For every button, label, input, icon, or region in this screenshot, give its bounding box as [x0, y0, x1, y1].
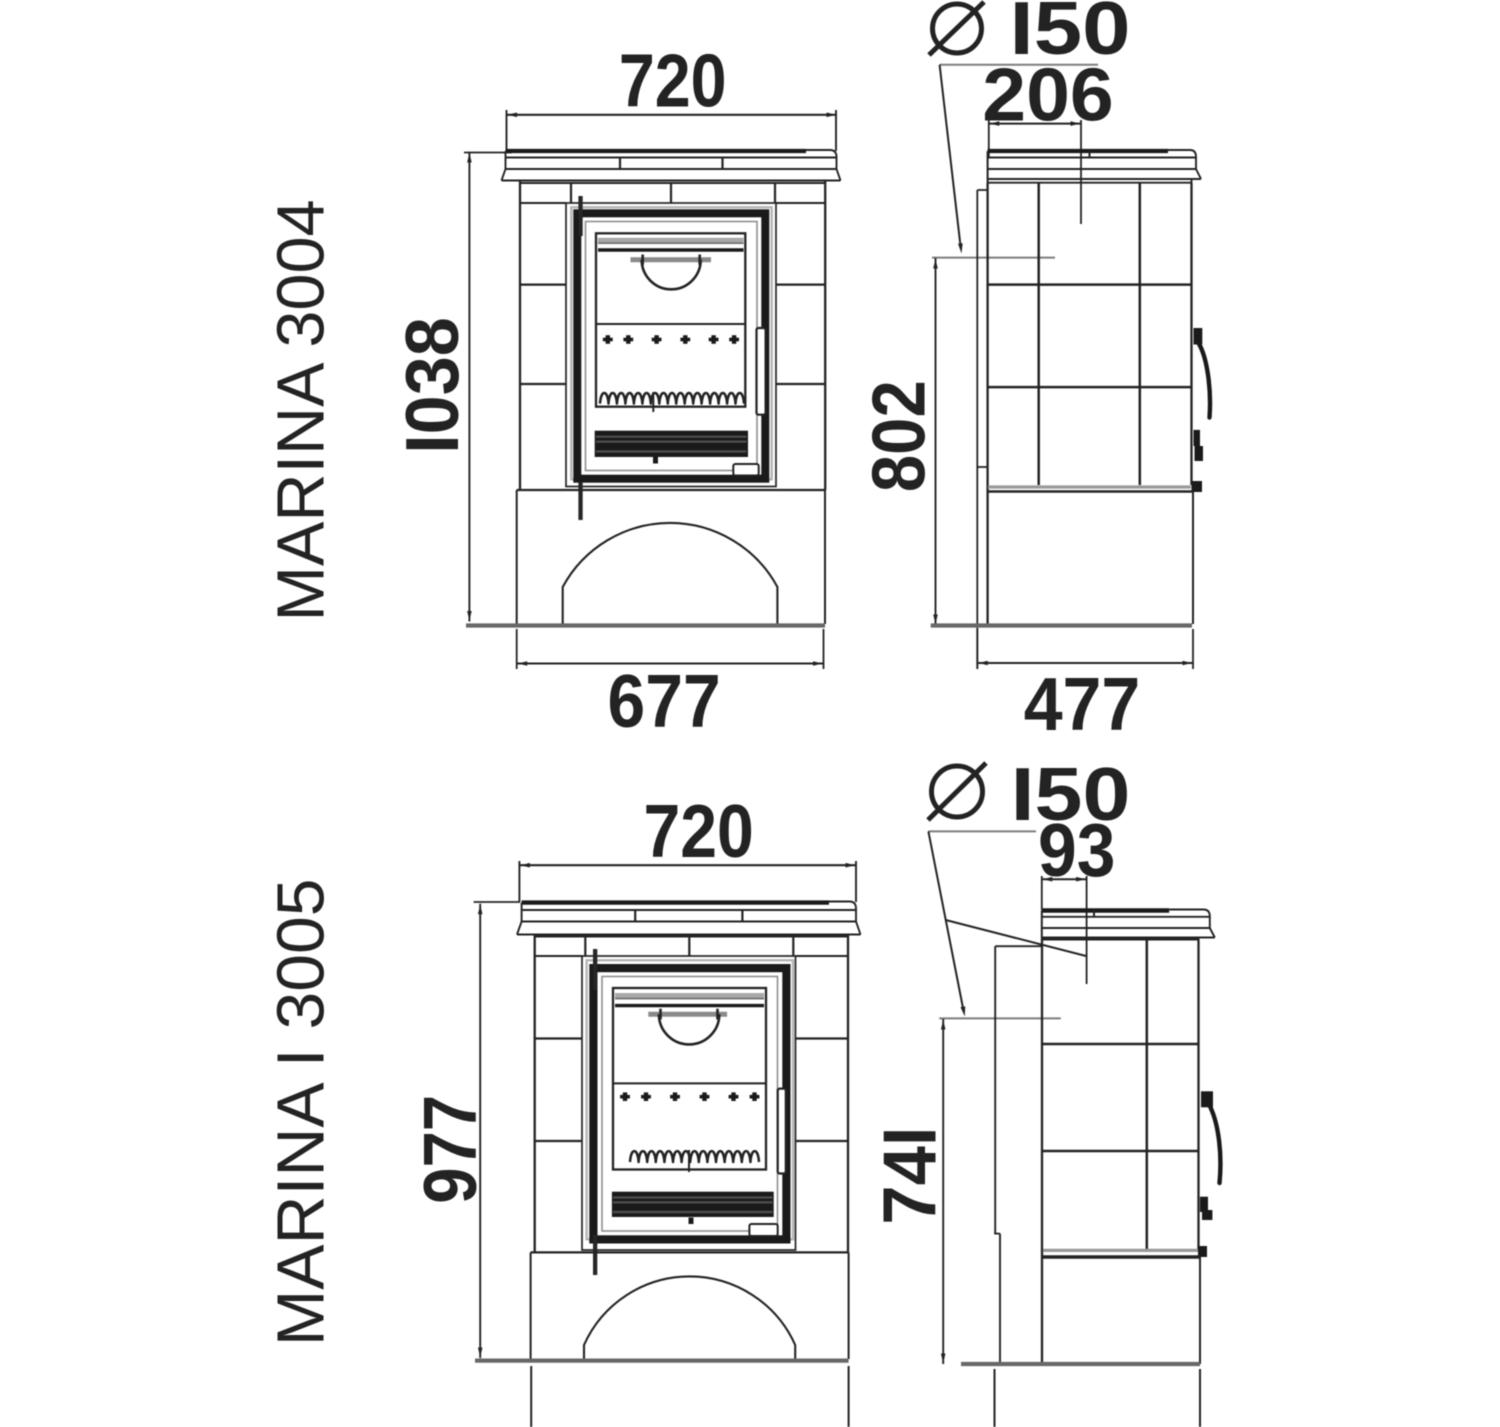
svg-text:720: 720 — [619, 39, 727, 123]
svg-text:477: 477 — [1024, 662, 1141, 746]
svg-text:802: 802 — [857, 380, 941, 492]
svg-text:74I: 74I — [867, 1127, 951, 1225]
svg-text:677: 677 — [608, 659, 721, 743]
svg-text:I038: I038 — [390, 317, 474, 454]
svg-text:MARINA I 3005: MARINA I 3005 — [264, 879, 339, 1347]
svg-text:MARINA 3004: MARINA 3004 — [264, 199, 339, 621]
svg-text:720: 720 — [643, 789, 753, 873]
